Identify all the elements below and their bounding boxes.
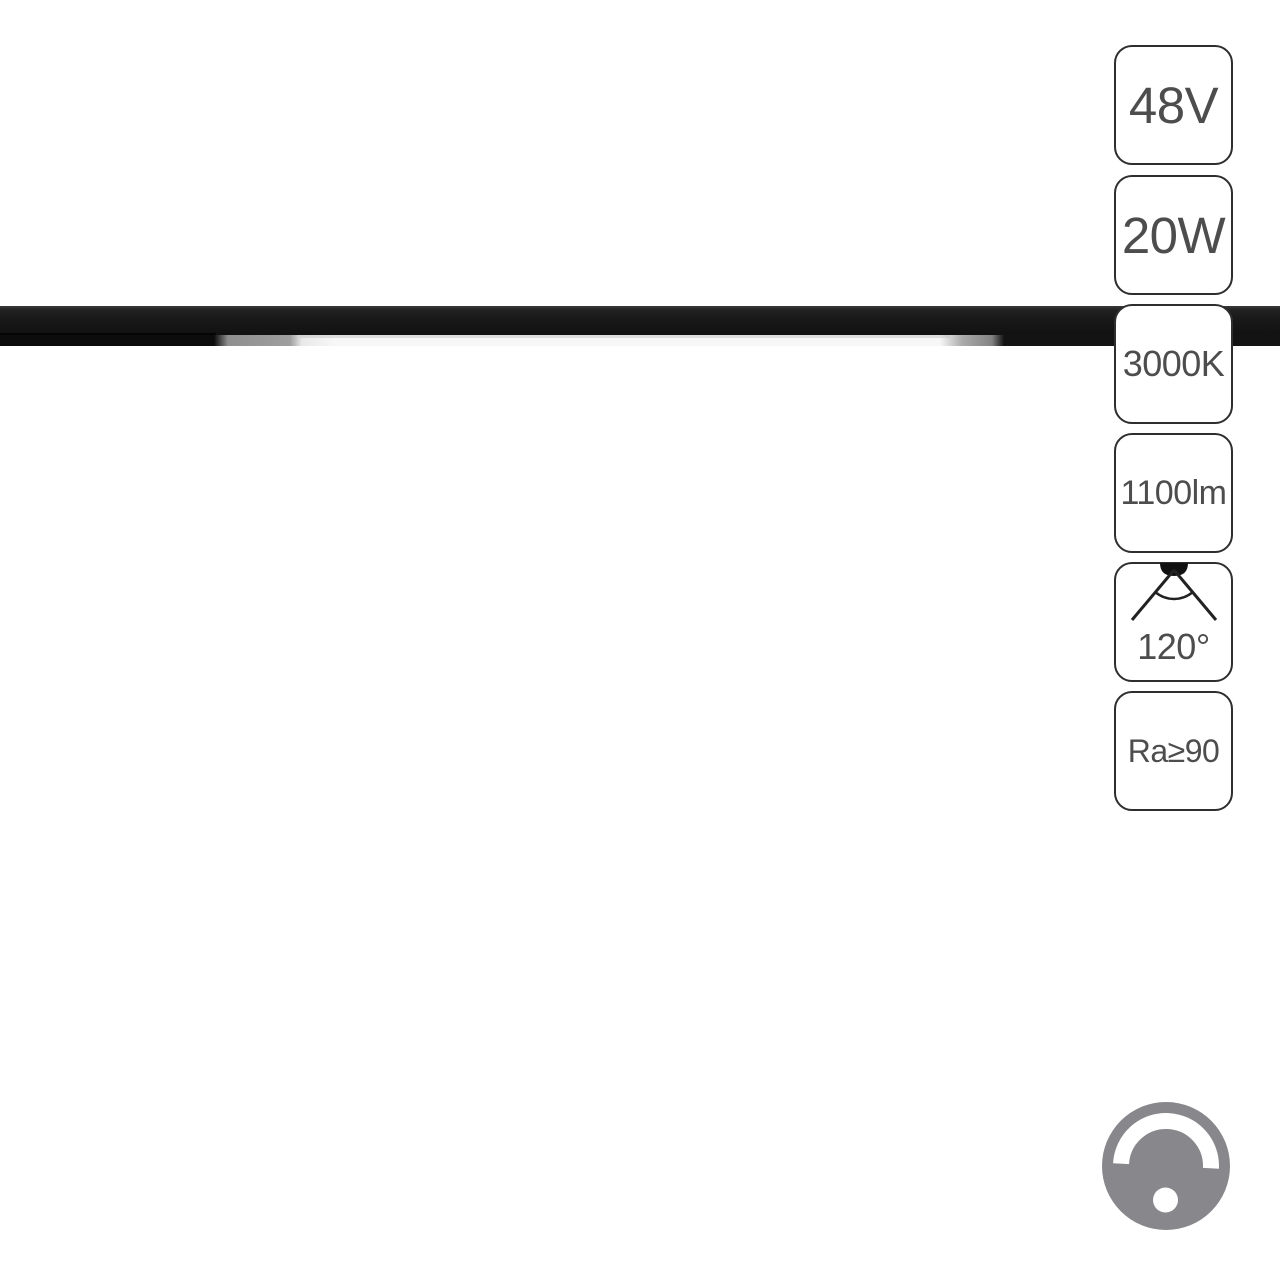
badge-luminous-flux-label: 1100lm [1121, 476, 1227, 510]
badge-voltage-label: 48V [1129, 80, 1218, 131]
dimmer-knob-icon [1102, 1102, 1230, 1230]
badge-voltage: 48V [1114, 45, 1233, 165]
linear-lamp-strip [0, 335, 1280, 346]
badge-beam-angle: 120° [1114, 562, 1233, 682]
badge-color-temperature-label: 3000K [1123, 346, 1225, 382]
badge-power-label: 20W [1122, 210, 1225, 261]
beam-angle-icon [1126, 563, 1222, 625]
badge-cri-label: Ra≥90 [1128, 735, 1220, 767]
product-image: 48V 20W 3000K 1100lm 120° Ra≥90 [0, 0, 1280, 1280]
badge-luminous-flux: 1100lm [1114, 433, 1233, 553]
badge-beam-angle-label: 120° [1137, 629, 1209, 665]
badge-power: 20W [1114, 175, 1233, 295]
badge-cri: Ra≥90 [1114, 691, 1233, 811]
badge-color-temperature: 3000K [1114, 304, 1233, 424]
